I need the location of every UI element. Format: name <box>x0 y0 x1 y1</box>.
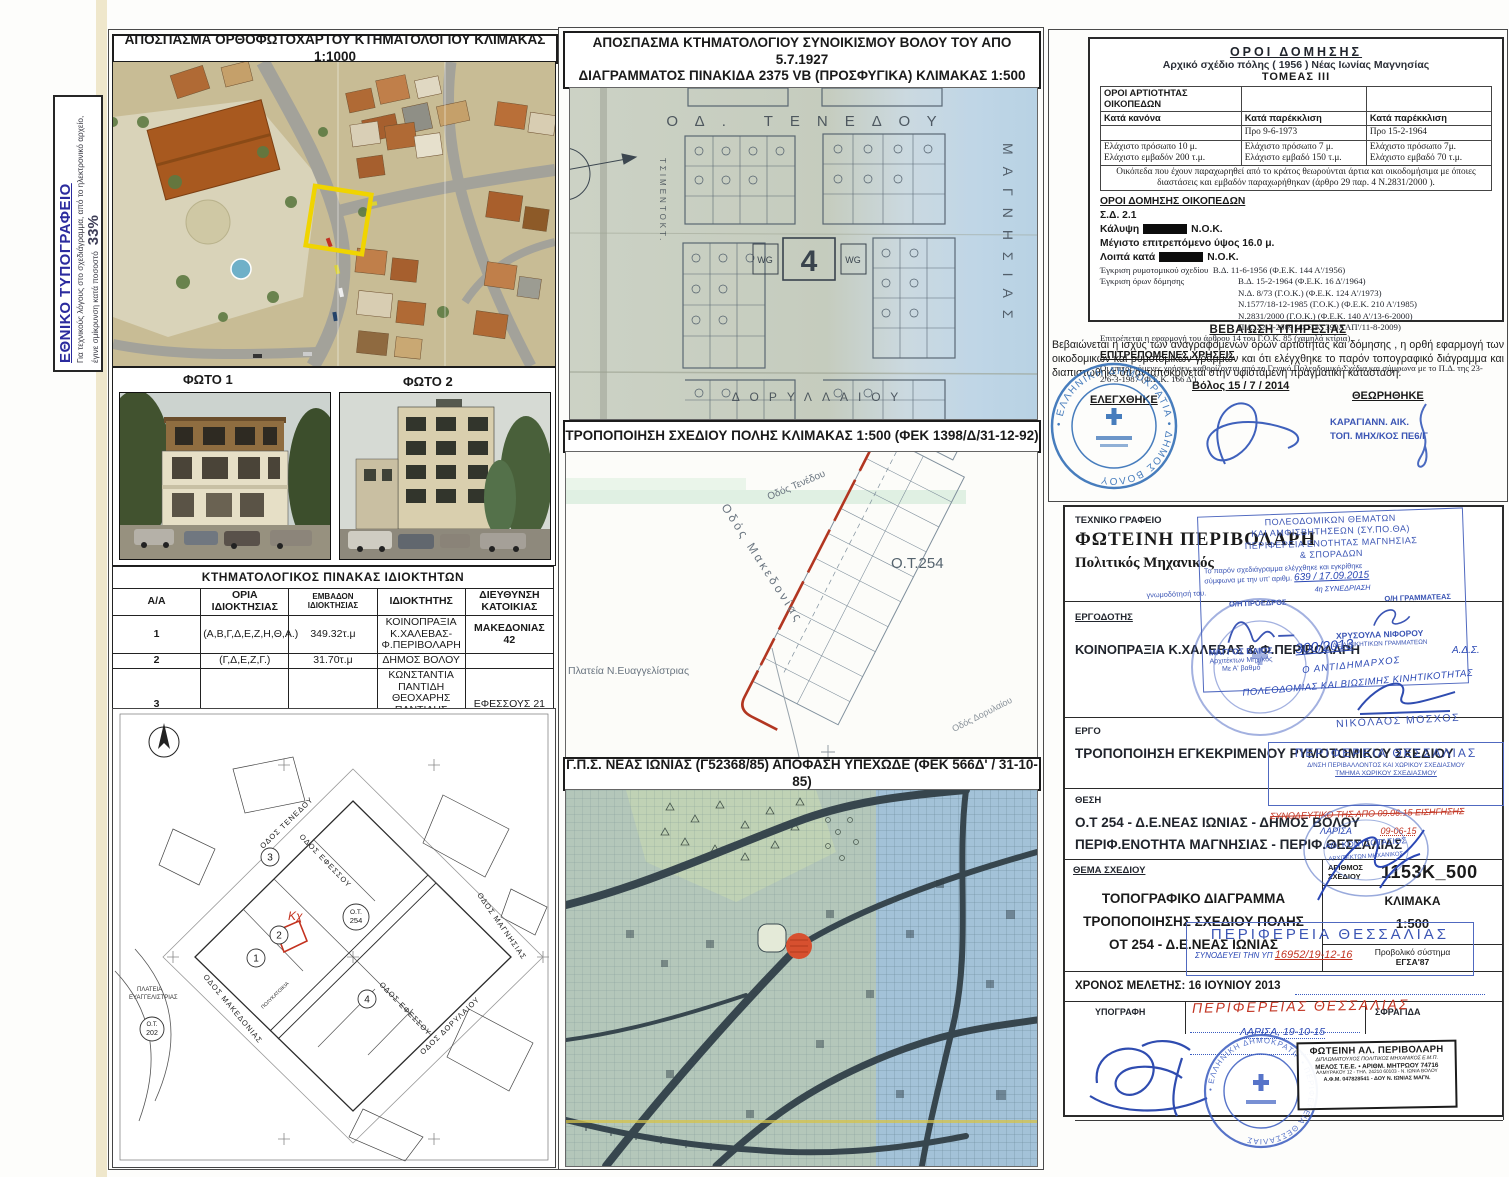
col-owner: ΙΔΙΟΚΤΗΤΗΣ <box>377 589 465 616</box>
trop-map-title: ΤΡΟΠΟΠΟΙΗΣΗ ΣΧΕΔΙΟΥ ΠΟΛΗΣ ΚΛΙΜΑΚΑΣ 1:500… <box>563 420 1041 453</box>
col-emvadon: ΕΜΒΑΔΟΝ ΙΔΙΟΚΤΗΣΙΑΣ <box>289 589 377 616</box>
svg-text:ΟΔΟΣ ΜΑΚΕΔΟΝΙΑΣ: ΟΔΟΣ ΜΑΚΕΔΟΝΙΑΣ <box>201 973 264 1046</box>
note-box: ΕΘΝΙΚΟ ΤΥΠΟΓΡΑΦΕΙΟ Για τεχνικούς λόγους … <box>53 95 103 372</box>
ypografi-label: ΥΠΟΓΡΑΦΗ <box>1095 1007 1145 1017</box>
xronos-value: ΧΡΟΝΟΣ ΜΕΛΕΤΗΣ: 16 ΙΟΥΝΙΟΥ 2013 <box>1075 980 1281 992</box>
yellow-scan-line <box>566 1120 1037 1123</box>
oroi-subtitle: Αρχικό σχέδιο πόλης ( 1956 ) Νέας Ιωνίας… <box>1163 59 1429 71</box>
office-role: Πολιτικός Μηχανικός <box>1075 555 1214 572</box>
map1927-title: ΑΠΟΣΠΑΣΜΑ ΚΤΗΜΑΤΟΛΟΓΙΟΥ ΣΥΝΟΙΚΙΣΜΟΥ ΒΟΛΟ… <box>563 31 1041 89</box>
table-row: 2 (Γ,Δ,Ε,Ζ,Γ.) 31.70τ.μ ΔΗΜΟΣ ΒΟΛΟΥ <box>113 654 554 669</box>
note-percent: 33% <box>85 215 102 245</box>
office-label: ΤΕΧΝΙΚΟ ΓΡΑΦΕΙΟ <box>1075 515 1162 526</box>
wg-right: WG <box>845 255 861 265</box>
redaction-box <box>1159 252 1203 262</box>
oroi-title: ΟΡΟΙ ΔΟΜΗΣΗΣ <box>1230 45 1362 59</box>
svg-text:ΔΟΡΥΛΛΑΙΟΥ: ΔΟΡΥΛΛΑΙΟΥ <box>732 390 909 404</box>
svg-text:ΑΘ. ΚΟΝΤΣΟΤΑΣΙΟΣ: ΑΘ. ΚΟΝΤΣΟΤΑΣΙΟΣ <box>1325 835 1407 851</box>
ergo-label: ΕΡΓΟ <box>1075 726 1101 737</box>
svg-text:ΟΔΟΣ ΕΦΕΣΣΟΥ: ΟΔΟΣ ΕΦΕΣΣΟΥ <box>378 980 434 1037</box>
artiotita-note: Οικόπεδα που έχουν παραχωρηθεί από το κρ… <box>1101 165 1492 190</box>
site-plan: Κχ 3 2 1 4 Ο.Τ. 254 Ο.Τ. 202 ΟΔΟΣ ΤΕΝΕΔΟ <box>112 708 556 1168</box>
ortho-panel-title: ΑΠΟΣΠΑΣΜΑ ΟΡΘΟΦΩΤΟΧΑΡΤΟΥ ΚΤΗΜΑΤΟΛΟΓΙΟΥ Κ… <box>112 34 558 64</box>
map1927-svg: 4 WG WG ΟΔ. ΤΕΝΕΔΟΥ ΔΟΡΥΛΛΑΙΟΥ ΤΣΙΜΕΝΤΟΚ… <box>570 88 1037 419</box>
egkrisi1: Έγκριση ρυμοτομικού σχεδίου Β.Δ. 11-6-19… <box>1100 265 1492 276</box>
svg-text:4: 4 <box>801 245 818 278</box>
note-body: Για τεχνικούς λόγους στο σχεδιάγραμμα, α… <box>76 105 103 363</box>
photos-panel: ΦΩΤΟ 1 ΦΩΤΟ 2 <box>112 367 556 566</box>
block-4: 4 WG WG <box>753 238 866 280</box>
orthophoto-svg <box>113 62 555 366</box>
site-plan-svg: Κχ 3 2 1 4 Ο.Τ. 254 Ο.Τ. 202 ΟΔΟΣ ΤΕΝΕΔΟ <box>113 709 555 1167</box>
svg-text:ΟΔ. ΤΕΝΕΔΟΥ: ΟΔ. ΤΕΝΕΔΟΥ <box>666 113 953 130</box>
fountain <box>231 259 251 279</box>
engineer-stamp-box: ΦΩΤΕΙΝΗ ΑΛ. ΠΕΡΙΒΟΛΑΡΗ ΔΙΠΛΩΜΑΤΟΥΧΟΣ ΠΟΛ… <box>1296 1040 1457 1111</box>
grid-crosses <box>167 759 549 1145</box>
photo2-svg <box>340 393 550 559</box>
svg-text:ΤΣΙΜΕΝΤΟΚΤ.: ΤΣΙΜΕΝΤΟΚΤ. <box>658 158 667 243</box>
trop-map-svg: Οδός Τενέδου Οδός Μακεδονίας Οδός Δορυλα… <box>566 452 1037 757</box>
kx-label: Κχ <box>288 909 303 923</box>
svg-text:1: 1 <box>253 954 259 965</box>
svg-text:ΠΛΑΤΕΙΑ: ΠΛΑΤΕΙΑ <box>137 987 162 993</box>
map1927: 4 WG WG ΟΔ. ΤΕΝΕΔΟΥ ΔΟΡΥΛΛΑΙΟΥ ΤΣΙΜΕΝΤΟΚ… <box>569 87 1038 420</box>
trop-map: Οδός Τενέδου Οδός Μακεδονίας Οδός Δορυλα… <box>565 451 1038 758</box>
bebaiosi-title: ΒΕΒΑΙΩΣΗ ΥΠΗΡΕΣΙΑΣ <box>1052 324 1504 336</box>
svg-text:ΟΔΟΣ ΕΦΕΣΣΟΥ: ΟΔΟΣ ΕΦΕΣΣΟΥ <box>298 832 354 889</box>
artiotita-table: ΟΡΟΙ ΑΡΤΙΟΤΗΤΑΣ ΟΙΚΟΠΕΔΩΝ Κατά κανόνα Κα… <box>1100 86 1492 191</box>
table-row: 1 (Α,Β,Γ,Δ,Ε,Ζ,Η,Θ,Α.) 349.32τ.μ ΚΟΙΝΟΠΡ… <box>113 615 554 653</box>
col-oria: ΟΡΙΑ ΙΔΙΟΚΤΗΣΙΑΣ <box>201 589 289 616</box>
gps-map <box>565 789 1038 1167</box>
thesi-label: ΘΕΣΗ <box>1075 795 1101 806</box>
dimos-volou-stamp: • ΕΛΛΗΝΙΚΗ ΔΗΜΟΚΡΑΤΙΑ • ΔΗΜΟΣ ΒΟΛΟΥ <box>1048 360 1180 492</box>
grammateas-signature <box>1363 602 1414 630</box>
plaza-blob <box>758 924 786 952</box>
kontsotasios-stamp: ΑΘ. ΚΟΝΤΣΟΤΑΣΙΟΣ ΑΡΧΙΤΕΚΤΩΝ ΜΗΧΑΝΙΚΟΣ <box>1288 788 1458 913</box>
theorithike-label: ΘΕΩΡΗΘΗΚΕ <box>1352 390 1424 402</box>
svg-text:2: 2 <box>276 931 282 942</box>
orthophoto-map <box>112 61 556 367</box>
ads-note: Α.Δ.Σ. <box>1452 645 1480 656</box>
svg-text:3: 3 <box>267 853 273 864</box>
wg-left: WG <box>757 255 773 265</box>
kalypsi-line: ΚάλυψηΝ.Ο.Κ. <box>1100 223 1492 237</box>
svg-text:202: 202 <box>146 1030 158 1037</box>
redaction-box <box>1143 224 1187 234</box>
photo2 <box>339 392 551 560</box>
oroi-section2: ΟΡΟΙ ΔΟΜΗΣΗΣ ΟΙΚΟΠΕΔΩΝ <box>1100 196 1492 207</box>
ergodotis-label: ΕΡΓΟΔΟΤΗΣ <box>1075 612 1133 623</box>
svg-text:254: 254 <box>350 916 363 925</box>
photo1 <box>119 392 331 560</box>
svg-text:ΜΑΓΝΗΣΙΑΣ: ΜΑΓΝΗΣΙΑΣ <box>1000 143 1016 330</box>
gps-map-svg <box>566 790 1037 1166</box>
svg-text:ΟΔΟΣ ΜΑΓΝΗΣΙΑΣ: ΟΔΟΣ ΜΑΓΝΗΣΙΑΣ <box>475 891 528 961</box>
ot-254: Ο.Τ. 254 <box>343 904 369 930</box>
svg-text:Ο.Τ.: Ο.Τ. <box>350 909 362 916</box>
sypotha-protocol: 639 / 17.09.2015 <box>1294 570 1369 584</box>
plateia-label: Πλατεία Ν.Ευαγγελίστριας <box>568 665 689 677</box>
sd-line: Σ.Δ. 2.1 <box>1100 209 1492 223</box>
photo1-svg <box>120 393 330 559</box>
dotted-line <box>1295 994 1485 995</box>
svg-text:Ο.Τ.: Ο.Τ. <box>146 1022 157 1028</box>
note-box-inner: ΕΘΝΙΚΟ ΤΥΠΟΓΡΑΦΕΙΟ Για τεχνικούς λόγους … <box>57 105 99 363</box>
ot-202: Ο.Τ. 202 <box>140 1017 164 1041</box>
ot254-label: Ο.Τ.254 <box>891 555 944 572</box>
oroi-tomeas: ΤΟΜΕΑΣ III <box>1262 71 1330 83</box>
north-arrow <box>149 723 179 757</box>
moschos-signature <box>1350 672 1470 717</box>
sheet-edge-right <box>1503 560 1504 1120</box>
svg-text:ΑΡΧΙΤΕΚΤΩΝ ΜΗΧΑΝΙΚΟΣ: ΑΡΧΙΤΕΚΤΩΝ ΜΗΧΑΝΙΚΟΣ <box>1328 851 1403 862</box>
loipa-line: Λοιπά κατάΝ.Ο.Κ. <box>1100 251 1492 265</box>
gps-map-title: Γ.Π.Σ. ΝΕΑΣ ΙΩΝΙΑΣ (Γ52368/85) ΑΠΟΦΑΣΗ Υ… <box>563 757 1041 791</box>
photo2-label: ΦΩΤΟ 2 <box>403 374 453 389</box>
thema-label: ΘΕΜΑ ΣΧΕΔΙΟΥ <box>1073 865 1145 876</box>
theorithike-signature <box>1400 402 1450 474</box>
col-address: ΔΙΕΥΘΥΝΣΗ ΚΑΤΟΙΚΙΑΣ <box>465 589 553 616</box>
col-aa: Α/Α <box>113 589 201 616</box>
svg-text:ΕΥΑΓΓΕΛΙΣΤΡΙΑΣ: ΕΥΑΓΓΕΛΙΣΤΡΙΑΣ <box>129 995 178 1001</box>
svg-text:4: 4 <box>364 995 370 1006</box>
oroi-domisis-panel: ΟΡΟΙ ΔΟΜΗΣΗΣ Αρχικό σχέδιο πόλης ( 1956 … <box>1088 37 1504 322</box>
perifereia-stamp-2: ΠΕΡΙΦΕΡΕΙΑ ΘΕΣΣΑΛΙΑΣ ΣΥΝΟΔΕΥΕΙ ΤΗΝ ΥΠ 16… <box>1186 922 1474 976</box>
plateia-label: ΠΛΑΤΕΙΑ ΕΥΑΓΓΕΛΙΣΤΡΙΑΣ <box>129 987 178 1001</box>
polykatoikia-label: ΠΟΛΥΚΑΤΟΙΚΙΑ <box>260 980 291 1010</box>
bebaiosi-signature <box>1170 386 1320 486</box>
note-title: ΕΘΝΙΚΟ ΤΥΠΟΓΡΑΦΕΙΟ <box>57 183 74 363</box>
photo1-label: ΦΩΤΟ 1 <box>183 372 233 387</box>
owners-table-title: ΚΤΗΜΑΤΟΛΟΓΙΚΟΣ ΠΙΝΑΚΑΣ ΙΔΙΟΚΤΗΤΩΝ <box>113 567 554 589</box>
topographic-diagram-sheet: ΕΘΝΙΚΟ ΤΥΠΟΓΡΑΦΕΙΟ Για τεχνικούς λόγους … <box>0 0 1509 1177</box>
ypsos-line: Μέγιστο επιτρεπόμενο ύψος 16.0 μ. <box>1100 237 1492 251</box>
round-stamp-partial <box>1185 592 1335 742</box>
